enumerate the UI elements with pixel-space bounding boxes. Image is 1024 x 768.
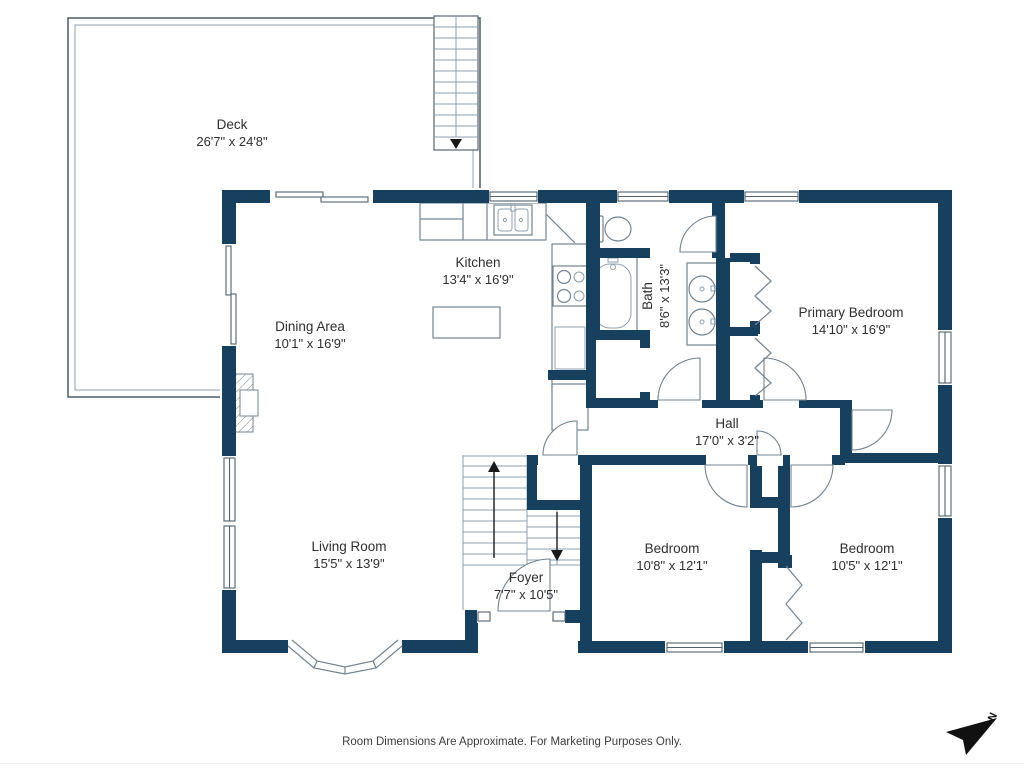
front-door-sidelight — [553, 612, 565, 621]
bath-vanity-sinks — [687, 263, 718, 345]
room-dims-deck: 26'7" x 24'8" — [196, 134, 268, 149]
window — [667, 643, 722, 652]
room-label-living: Living Room — [311, 539, 386, 554]
front-door-sidelight — [478, 612, 490, 621]
kitchen-island — [433, 307, 500, 338]
room-label-hall: Hall — [715, 416, 738, 431]
room-dims-hall: 17'0" x 3'2" — [695, 433, 759, 448]
room-dims-foyer: 7'7" x 10'5" — [494, 587, 558, 602]
window — [745, 192, 798, 201]
room-dims-living: 15'5" x 13'9" — [313, 556, 385, 571]
room-label-bedroom1: Bedroom — [645, 541, 700, 556]
window — [224, 526, 235, 588]
floor-plan-page: Deck 26'7" x 24'8" Kitchen 13'4" x 16'9"… — [0, 0, 1024, 768]
window — [939, 466, 951, 516]
room-label-bath: Bath — [640, 282, 655, 310]
room-dims-dining: 10'1" x 16'9" — [274, 336, 346, 351]
compass-north-icon: N — [946, 711, 1000, 755]
room-dims-bedroom2: 10'5" x 12'1" — [831, 558, 903, 573]
linen-closet — [596, 340, 650, 398]
kitchen-sink — [494, 202, 532, 235]
footer-disclaimer: Room Dimensions Are Approximate. For Mar… — [342, 736, 682, 748]
window — [618, 192, 668, 201]
window — [810, 643, 863, 652]
window — [490, 192, 537, 201]
room-dims-bedroom1: 10'8" x 12'1" — [636, 558, 708, 573]
stove-icon — [553, 266, 588, 306]
foyer-closet — [537, 465, 580, 500]
floor-plan-drawing: Deck 26'7" x 24'8" Kitchen 13'4" x 16'9"… — [0, 0, 1024, 768]
room-label-foyer: Foyer — [509, 570, 544, 585]
room-label-bedroom2: Bedroom — [840, 541, 895, 556]
deck-stairs — [434, 16, 478, 150]
room-label-kitchen: Kitchen — [455, 255, 500, 270]
window — [939, 332, 951, 383]
window — [224, 458, 235, 521]
room-dims-kitchen: 13'4" x 16'9" — [442, 272, 514, 287]
room-dims-primary: 14'10" x 16'9" — [812, 322, 891, 337]
room-label-primary: Primary Bedroom — [798, 305, 903, 320]
room-label-deck: Deck — [217, 117, 248, 132]
room-dims-bath: 8'6" x 13'3" — [657, 264, 672, 328]
room-label-dining: Dining Area — [275, 319, 345, 334]
